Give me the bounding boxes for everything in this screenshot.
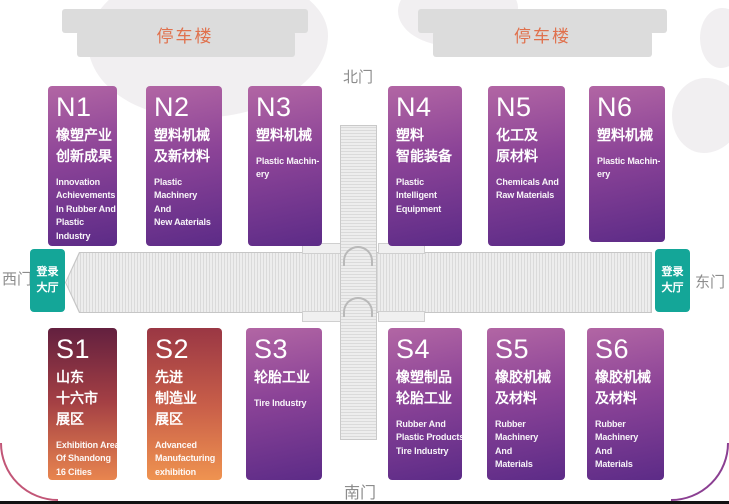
hall-name-en: Plastic Machinery And New Aaterials [154, 176, 218, 230]
hall-s6[interactable]: S6 橡胶机械 及材料 Rubber Machinery And Materia… [587, 328, 664, 480]
hall-code: S3 [254, 335, 318, 365]
hall-name-cn: 塑料机械 [256, 125, 318, 146]
parking-right-label: 停车楼 [418, 22, 667, 47]
north-gate-label: 北门 [343, 66, 373, 87]
hall-name-cn: 塑料机械 及新材料 [154, 125, 218, 167]
east-gate-label: 东门 [695, 271, 725, 292]
hall-code: S6 [595, 335, 660, 365]
hall-code: S5 [495, 335, 561, 365]
hall-name-cn: 化工及 原材料 [496, 125, 561, 167]
hall-code: S2 [155, 335, 218, 365]
hall-s5[interactable]: S5 橡胶机械 及材料 Rubber Machinery And Materia… [487, 328, 565, 480]
hall-n2[interactable]: N2 塑料机械 及新材料 Plastic Machinery And New A… [146, 86, 222, 246]
aisle-landing [302, 311, 342, 322]
map-backdrop-blob [672, 78, 729, 153]
hall-code: N3 [256, 93, 318, 123]
registration-hall-east: 登录 大厅 [655, 249, 690, 312]
west-gate-label: 西门 [2, 268, 32, 289]
hall-s3[interactable]: S3 轮胎工业 Tire Industry [246, 328, 322, 480]
aisle-landing [378, 311, 425, 322]
hall-n3[interactable]: N3 塑料机械 Plastic Machin- ery [248, 86, 322, 246]
hall-name-cn: 山东 十六市 展区 [56, 367, 113, 430]
hall-n6[interactable]: N6 塑料机械 Plastic Machin- ery [589, 86, 665, 242]
hall-name-cn: 轮胎工业 [254, 367, 318, 388]
parking-left-label: 停车楼 [62, 22, 308, 47]
hall-name-en: Chemicals And Raw Materials [496, 176, 561, 203]
hall-name-en: Exhibition Area Of Shandong 16 Cities [56, 439, 113, 480]
hall-name-en: Innovation Achievements In Rubber And Pl… [56, 176, 113, 244]
hall-name-cn: 橡胶机械 及材料 [595, 367, 660, 409]
hall-code: S4 [396, 335, 458, 365]
hall-s4[interactable]: S4 橡塑制品 轮胎工业 Rubber And Plastic Products… [388, 328, 462, 480]
hall-s1[interactable]: S1 山东 十六市 展区 Exhibition Area Of Shandong… [48, 328, 117, 480]
hall-name-en: Plastic Machin- ery [597, 155, 661, 182]
hall-s2[interactable]: S2 先进 制造业 展区 Advanced Manufacturing exhi… [147, 328, 222, 480]
hall-name-cn: 塑料机械 [597, 125, 661, 146]
exhibition-floor-plan: 停车楼 停车楼 北门 南门 西门 东门 登录 大厅 登录 大厅 N1 橡塑产业 … [0, 0, 729, 504]
hall-name-en: Plastic Machin- ery [256, 155, 318, 182]
map-backdrop-blob [700, 8, 729, 68]
hall-n5[interactable]: N5 化工及 原材料 Chemicals And Raw Materials [488, 86, 565, 246]
hall-code: N4 [396, 93, 458, 123]
hall-name-en: Rubber Machinery And Materials [595, 418, 660, 472]
hall-name-en: Advanced Manufacturing exhibition area [155, 439, 218, 493]
south-gate-label: 南门 [344, 479, 376, 503]
hall-name-en: Tire Industry [254, 397, 318, 411]
central-aisle-vertical [340, 125, 377, 440]
hall-n1[interactable]: N1 橡塑产业 创新成果 Innovation Achievements In … [48, 86, 117, 246]
hall-name-cn: 橡塑制品 轮胎工业 [396, 367, 458, 409]
hall-name-en: Rubber And Plastic Products Tire Industr… [396, 418, 458, 459]
hall-n4[interactable]: N4 塑料 智能装备 Plastic Intelligent Equipment [388, 86, 462, 246]
hall-code: N1 [56, 93, 113, 123]
hall-name-en: Plastic Intelligent Equipment [396, 176, 458, 217]
hall-name-cn: 塑料 智能装备 [396, 125, 458, 167]
hall-name-cn: 先进 制造业 展区 [155, 367, 218, 430]
hall-code: S1 [56, 335, 113, 365]
hall-name-cn: 橡塑产业 创新成果 [56, 125, 113, 167]
hall-code: N2 [154, 93, 218, 123]
hall-code: N6 [597, 93, 661, 123]
hall-name-cn: 橡胶机械 及材料 [495, 367, 561, 409]
registration-hall-west: 登录 大厅 [30, 249, 65, 312]
hall-name-en: Rubber Machinery And Materials [495, 418, 561, 472]
hall-code: N5 [496, 93, 561, 123]
